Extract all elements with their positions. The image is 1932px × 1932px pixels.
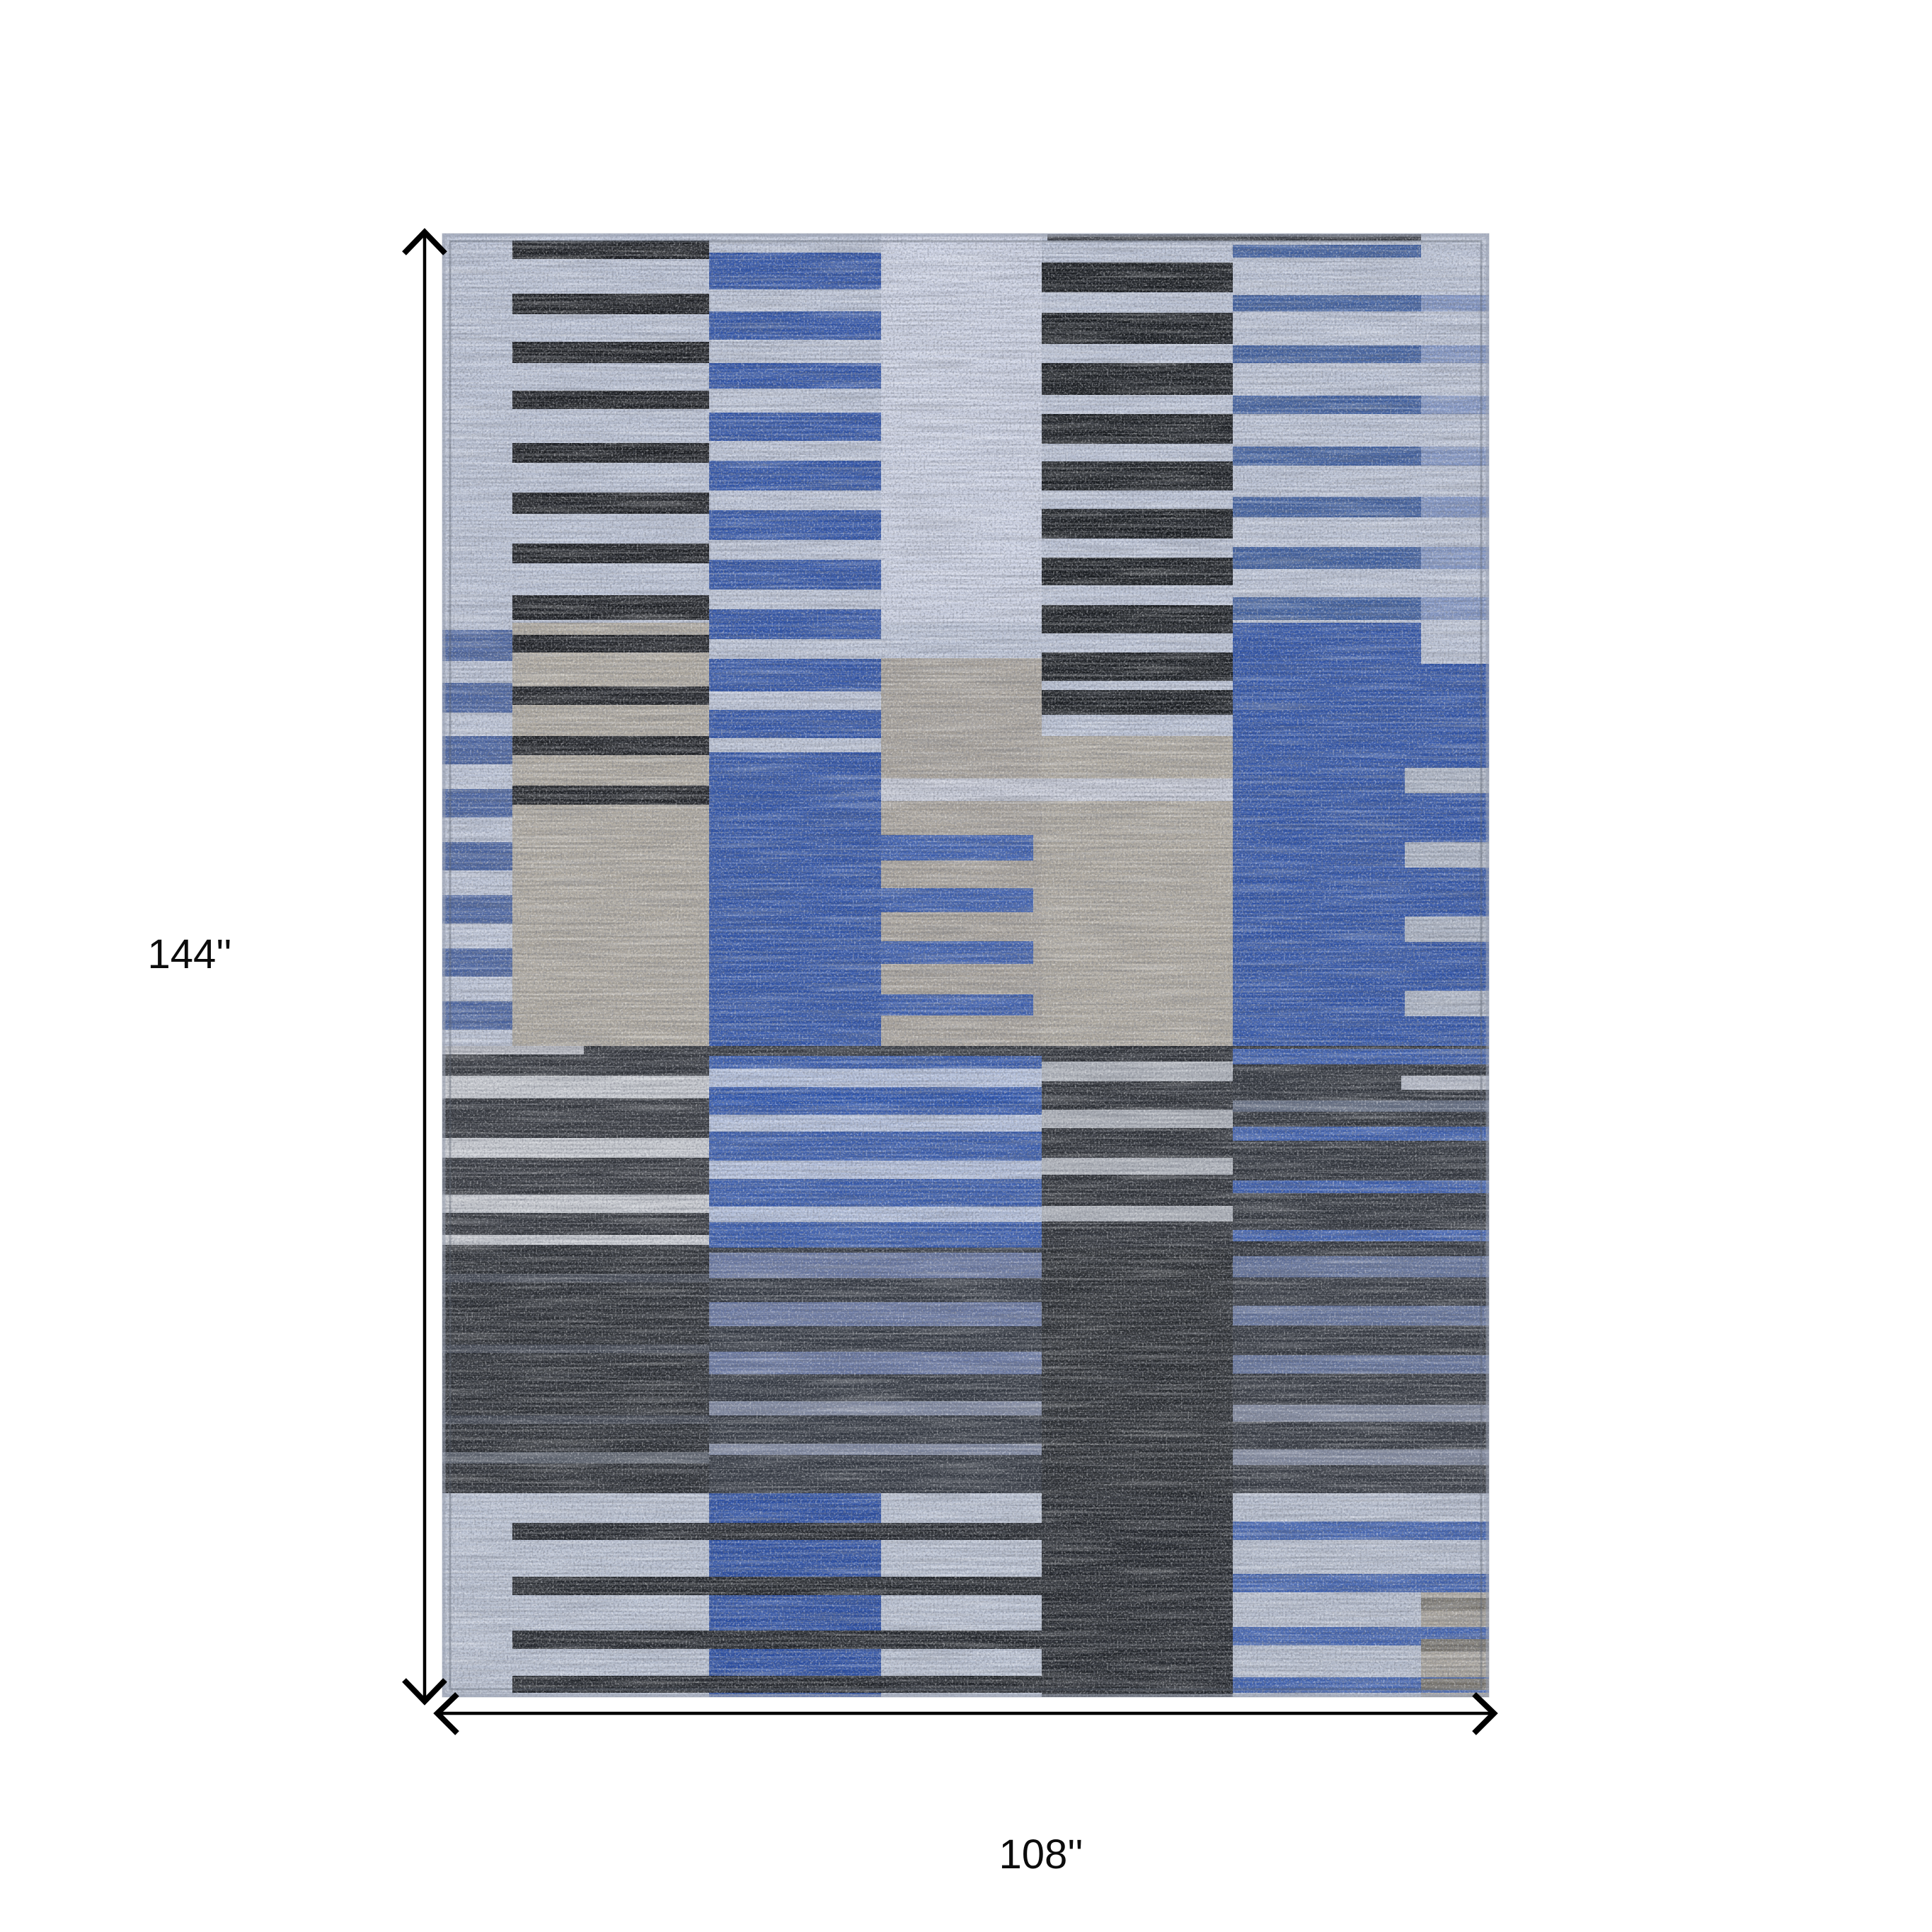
svg-text:144'': 144'' <box>148 931 232 977</box>
svg-text:108'': 108'' <box>999 1832 1083 1878</box>
